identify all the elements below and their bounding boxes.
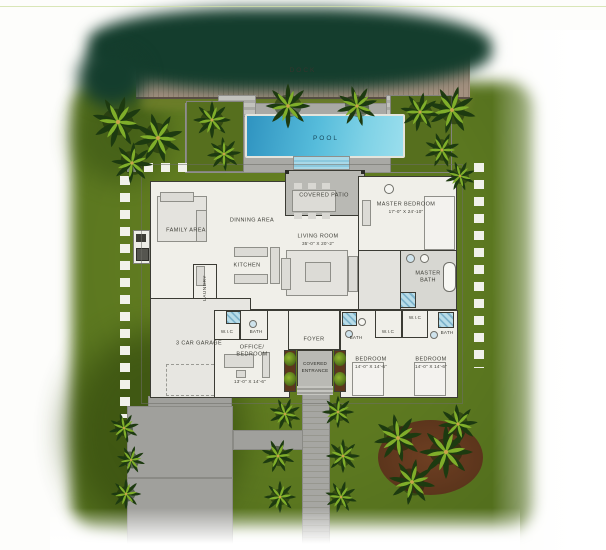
bed2-sink: [358, 318, 366, 326]
palm-tree-icon: [109, 140, 155, 186]
fade-bottom: [50, 508, 520, 550]
dock-label: DOCK: [290, 67, 317, 75]
kitchen-counter: [234, 247, 268, 257]
office-label-1: OFFICE/: [240, 345, 265, 352]
covered-entrance-label-2: ENTRANCE: [302, 368, 329, 374]
master-sink: [420, 254, 429, 263]
living-coffee-table: [305, 262, 331, 282]
living-sofa: [348, 256, 358, 292]
master-bedroom-label: MASTER BEDROOM: [377, 202, 435, 209]
bedroom2-label: BEDROOM: [355, 357, 386, 364]
entrance-shrub: [284, 372, 296, 386]
palm-tree-icon: [386, 456, 438, 508]
foyer-label: FOYER: [304, 337, 325, 344]
master-tub: [443, 262, 456, 292]
master-bath-label-1: MASTER: [415, 271, 440, 278]
living-sofa: [281, 258, 291, 290]
kitchen-label: KITCHEN: [234, 263, 261, 270]
palm-tree-icon: [443, 159, 477, 193]
office-dims: 13'-0" X 14'-6": [234, 379, 266, 385]
covered-entrance-label-1: COVERED: [303, 361, 327, 367]
office-chair: [236, 370, 246, 378]
family-area-label: FAMILY AREA: [166, 228, 206, 235]
family-sofa: [196, 210, 207, 242]
dining-chairs: [294, 213, 334, 219]
hedge: [88, 8, 492, 90]
master-bedroom-dims: 17'-0" X 24'-10": [389, 209, 424, 215]
master-corridor: [358, 250, 402, 310]
patio-post: [361, 170, 365, 174]
palm-tree-icon: [320, 394, 356, 430]
pool-label: POOL: [313, 135, 339, 143]
bedroom3-label: BEDROOM: [415, 357, 446, 364]
palm-tree-icon: [115, 444, 147, 476]
stepping-path-west: [120, 176, 130, 418]
palm-tree-icon: [398, 90, 442, 134]
palm-tree-icon: [107, 411, 141, 445]
covered-patio-label: COVERED PATIO: [299, 193, 349, 200]
bed3-bath-label: BATH: [441, 330, 454, 336]
dining-chairs: [294, 183, 334, 189]
palm-tree-icon: [263, 81, 313, 131]
site-plan-canvas: DOCK POOL COVERED PATIO FAMILY AREA DINN…: [0, 0, 606, 550]
entrance-shrub: [284, 352, 296, 366]
office-shower: [226, 311, 241, 324]
laundry-label: LAUNDRY: [203, 275, 209, 301]
palm-tree-icon: [267, 396, 303, 432]
bed2-wic-label: W.I.C: [382, 329, 394, 335]
dinning-area-label: DINNING AREA: [230, 218, 274, 225]
living-room-label: LIVING ROOM: [297, 234, 338, 241]
kitchen-fridge: [270, 247, 280, 284]
top-accent-line: [0, 6, 606, 7]
master-toilet: [406, 254, 415, 263]
foyer: [288, 310, 340, 350]
garage-label: 3 CAR GARAGE: [176, 341, 222, 348]
fade-right: [492, 30, 606, 550]
bedroom2-dims: 14'-0" X 14'-6": [355, 364, 387, 370]
bedroom3-dims: 14'-0" X 14'-6": [415, 364, 447, 370]
living-room-dims: 35'-0" X 20'-2": [302, 241, 334, 247]
master-decor: [384, 184, 394, 194]
kitchen-island: [234, 274, 268, 284]
palm-tree-icon: [436, 402, 480, 446]
palm-tree-icon: [109, 477, 143, 511]
office-wic-label: W.I.C: [221, 329, 233, 335]
office-bath-label: BATH: [250, 329, 263, 335]
master-bath-label-2: BATH: [420, 278, 436, 285]
master-dresser: [362, 200, 371, 226]
palm-tree-icon: [259, 437, 297, 475]
bed2-bath-label: BATH: [350, 335, 363, 341]
stepping-path-east: [474, 163, 484, 368]
bed3-toilet: [430, 331, 438, 339]
entrance-shrub: [334, 352, 346, 366]
entrance-shrub: [334, 372, 346, 386]
office-toilet: [249, 320, 257, 328]
master-shower: [400, 292, 416, 308]
patio-post: [285, 170, 289, 174]
palm-tree-icon: [334, 83, 380, 129]
bed2-shower: [342, 312, 357, 326]
office-label-2: BEDROOM: [236, 352, 267, 359]
bed3-shower: [438, 312, 454, 328]
palm-tree-icon: [324, 437, 362, 475]
palm-tree-icon: [205, 135, 243, 173]
bed3-wic-label: W.I.C: [409, 315, 421, 321]
family-sofa: [160, 192, 194, 202]
